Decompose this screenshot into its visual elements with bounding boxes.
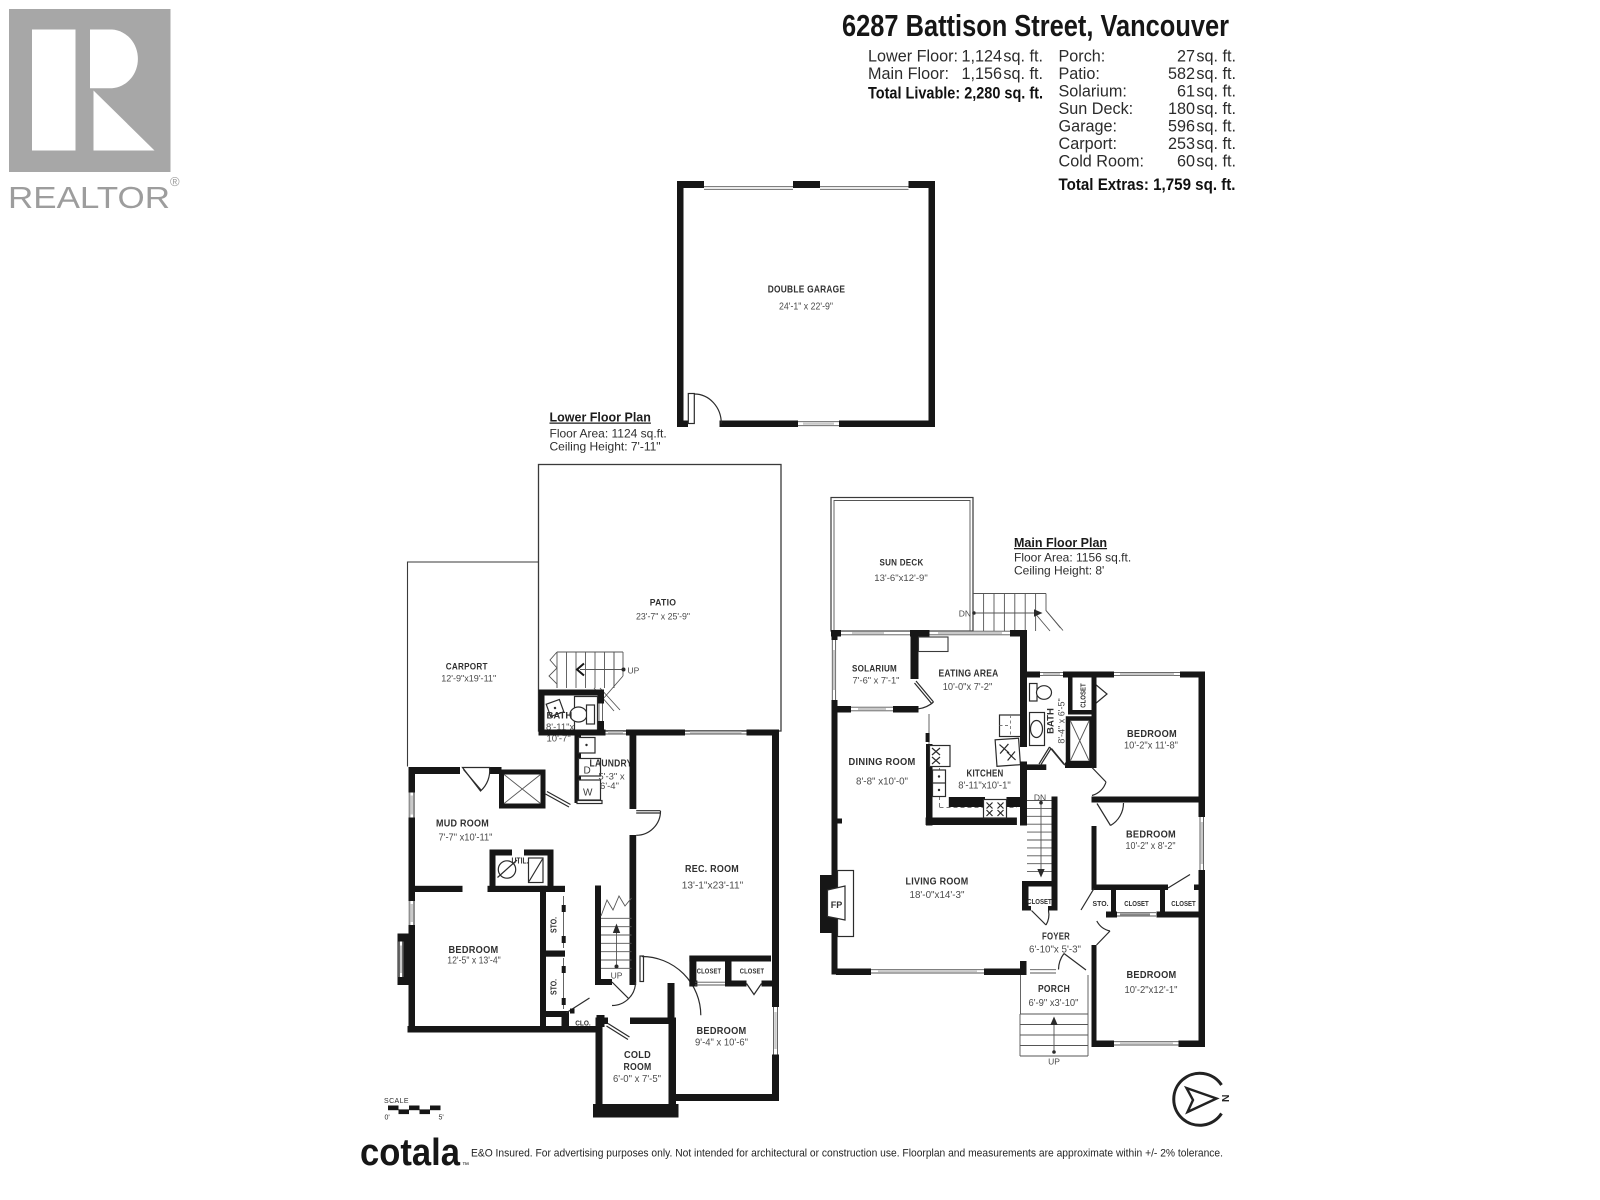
svg-text:SUN DECK: SUN DECK bbox=[880, 558, 924, 569]
svg-text:Ceiling Height: 8': Ceiling Height: 8' bbox=[1014, 564, 1104, 578]
svg-text:BEDROOM: BEDROOM bbox=[1126, 829, 1176, 841]
svg-text:ROOM: ROOM bbox=[624, 1061, 652, 1073]
svg-text:1,156 sq. ft.: 1,156 sq. ft. bbox=[962, 65, 1043, 83]
svg-text:6'-4": 6'-4" bbox=[600, 781, 619, 792]
svg-text:18'-0"x14'-3": 18'-0"x14'-3" bbox=[910, 889, 965, 901]
svg-text:6287 Battison Street, Vancouve: 6287 Battison Street, Vancouver bbox=[842, 8, 1229, 43]
svg-text:Floor Area: 1156 sq.ft.: Floor Area: 1156 sq.ft. bbox=[1014, 551, 1131, 565]
svg-text:UP: UP bbox=[628, 666, 640, 676]
svg-text:24'-1" x 22'-9": 24'-1" x 22'-9" bbox=[779, 301, 833, 313]
svg-text:UTIL.: UTIL. bbox=[512, 856, 529, 866]
svg-text:PORCH: PORCH bbox=[1038, 983, 1070, 995]
svg-text:Cold Room:: Cold Room: bbox=[1059, 153, 1144, 171]
svg-text:cotala: cotala bbox=[360, 1132, 461, 1174]
svg-text:Main Floor Plan: Main Floor Plan bbox=[1014, 536, 1107, 550]
svg-text:7'-7" x10'-11": 7'-7" x10'-11" bbox=[439, 832, 493, 844]
svg-text:CLOSET: CLOSET bbox=[1171, 899, 1196, 908]
svg-text:BATH: BATH bbox=[547, 711, 573, 722]
svg-text:Porch:: Porch: bbox=[1059, 48, 1106, 66]
svg-text:BEDROOM: BEDROOM bbox=[1127, 969, 1177, 981]
svg-text:BEDROOM: BEDROOM bbox=[697, 1025, 747, 1037]
svg-text:UP: UP bbox=[1048, 1057, 1060, 1067]
svg-text:6'-0" x 7'-5": 6'-0" x 7'-5" bbox=[613, 1073, 661, 1085]
svg-text:Main Floor:: Main Floor: bbox=[868, 65, 949, 83]
svg-text:13'-6"x12'-9": 13'-6"x12'-9" bbox=[874, 573, 928, 584]
svg-text:5': 5' bbox=[439, 1115, 444, 1122]
svg-text:CLOSET: CLOSET bbox=[740, 967, 765, 976]
svg-text:CLOSET: CLOSET bbox=[1124, 899, 1149, 908]
svg-text:Lower Floor:: Lower Floor: bbox=[868, 48, 958, 66]
svg-text:13'-1"x23'-11": 13'-1"x23'-11" bbox=[682, 880, 744, 892]
svg-text:596 sq. ft.: 596 sq. ft. bbox=[1168, 118, 1236, 136]
svg-text:REC. ROOM: REC. ROOM bbox=[685, 863, 739, 875]
svg-text:8'-11"x10'-1": 8'-11"x10'-1" bbox=[958, 780, 1011, 792]
svg-text:STO.: STO. bbox=[549, 979, 559, 995]
svg-text:Solarium:: Solarium: bbox=[1059, 83, 1127, 101]
svg-text:STO.: STO. bbox=[1093, 899, 1109, 908]
svg-text:Garage:: Garage: bbox=[1059, 118, 1118, 136]
svg-text:E&O Insured. For advertising p: E&O Insured. For advertising purposes on… bbox=[471, 1148, 1223, 1160]
svg-text:1,124 sq. ft.: 1,124 sq. ft. bbox=[962, 48, 1043, 66]
svg-text:FOYER: FOYER bbox=[1042, 931, 1070, 943]
svg-text:SOLARIUM: SOLARIUM bbox=[852, 664, 897, 675]
svg-text:®: ® bbox=[170, 174, 180, 189]
svg-text:8'-8" x10'-0": 8'-8" x10'-0" bbox=[856, 776, 908, 788]
svg-text:61 sq. ft.: 61 sq. ft. bbox=[1177, 83, 1236, 101]
svg-text:LIVING ROOM: LIVING ROOM bbox=[906, 876, 969, 888]
svg-text:180 sq. ft.: 180 sq. ft. bbox=[1168, 100, 1236, 118]
svg-text:Carport:: Carport: bbox=[1059, 135, 1117, 153]
svg-text:BEDROOM: BEDROOM bbox=[1127, 728, 1177, 740]
svg-text:9'-4" x 10'-6": 9'-4" x 10'-6" bbox=[695, 1037, 748, 1049]
svg-text:CLOSET: CLOSET bbox=[1081, 683, 1088, 708]
svg-text:253 sq. ft.: 253 sq. ft. bbox=[1168, 135, 1236, 153]
svg-text:FP: FP bbox=[831, 900, 843, 910]
svg-text:0': 0' bbox=[385, 1115, 390, 1122]
svg-text:27 sq. ft.: 27 sq. ft. bbox=[1177, 48, 1236, 66]
svg-text:EATING AREA: EATING AREA bbox=[939, 668, 999, 680]
svg-text:DN: DN bbox=[959, 609, 971, 619]
svg-text:LAUNDRY: LAUNDRY bbox=[590, 758, 633, 770]
svg-text:10'-2" x 8'-2": 10'-2" x 8'-2" bbox=[1126, 840, 1176, 852]
svg-text:12'-5" x 13'-4": 12'-5" x 13'-4" bbox=[447, 955, 501, 967]
svg-text:KITCHEN: KITCHEN bbox=[967, 768, 1004, 780]
svg-text:N: N bbox=[1219, 1095, 1231, 1103]
svg-text:STO.: STO. bbox=[549, 917, 559, 933]
svg-text:W: W bbox=[583, 788, 593, 799]
svg-text:Total Livable: 2,280 sq. ft.: Total Livable: 2,280 sq. ft. bbox=[868, 85, 1043, 103]
svg-text:CARPORT: CARPORT bbox=[446, 662, 488, 673]
svg-text:BATH: BATH bbox=[1046, 708, 1057, 734]
svg-text:7'-6" x 7'-1": 7'-6" x 7'-1" bbox=[853, 676, 900, 687]
svg-text:CLOSET: CLOSET bbox=[697, 967, 722, 976]
svg-text:Patio:: Patio: bbox=[1059, 65, 1100, 83]
svg-text:582 sq. ft.: 582 sq. ft. bbox=[1168, 65, 1236, 83]
svg-text:12'-9"x19'-11": 12'-9"x19'-11" bbox=[441, 674, 496, 685]
svg-text:Ceiling Height: 7'-11": Ceiling Height: 7'-11" bbox=[550, 440, 661, 454]
svg-text:Sun Deck:: Sun Deck: bbox=[1059, 100, 1134, 118]
svg-text:Total Extras: 1,759 sq. ft.: Total Extras: 1,759 sq. ft. bbox=[1059, 176, 1236, 194]
svg-text:6'-9" x3'-10": 6'-9" x3'-10" bbox=[1029, 997, 1079, 1009]
svg-text:10'-0"x 7'-2": 10'-0"x 7'-2" bbox=[943, 681, 993, 693]
svg-text:10'-2"x 11'-8": 10'-2"x 11'-8" bbox=[1124, 740, 1178, 752]
svg-text:8'-4" x 6'-5": 8'-4" x 6'-5" bbox=[1057, 698, 1067, 743]
svg-text:10'-2"x12'-1": 10'-2"x12'-1" bbox=[1125, 984, 1178, 996]
svg-text:™: ™ bbox=[462, 1162, 469, 1169]
svg-text:23'-7" x 25'-9": 23'-7" x 25'-9" bbox=[636, 612, 690, 623]
svg-text:CLO.: CLO. bbox=[575, 1021, 591, 1028]
svg-text:Floor Area: 1124 sq.ft.: Floor Area: 1124 sq.ft. bbox=[550, 427, 667, 441]
svg-text:DOUBLE GARAGE: DOUBLE GARAGE bbox=[768, 284, 846, 296]
svg-text:UP: UP bbox=[611, 971, 623, 981]
svg-text:60 sq. ft.: 60 sq. ft. bbox=[1177, 153, 1236, 171]
svg-text:REALTOR: REALTOR bbox=[8, 181, 170, 215]
svg-text:DINING ROOM: DINING ROOM bbox=[849, 756, 916, 768]
svg-text:MUD ROOM: MUD ROOM bbox=[436, 818, 489, 830]
svg-text:SCALE: SCALE bbox=[384, 1098, 409, 1105]
svg-text:6'-10"x 5'-3": 6'-10"x 5'-3" bbox=[1029, 944, 1081, 956]
svg-text:COLD: COLD bbox=[624, 1049, 651, 1061]
svg-text:Lower Floor Plan: Lower Floor Plan bbox=[550, 411, 651, 425]
svg-text:CLOSET: CLOSET bbox=[1027, 897, 1052, 906]
svg-text:DN: DN bbox=[1034, 793, 1046, 803]
svg-text:PATIO: PATIO bbox=[650, 598, 677, 609]
